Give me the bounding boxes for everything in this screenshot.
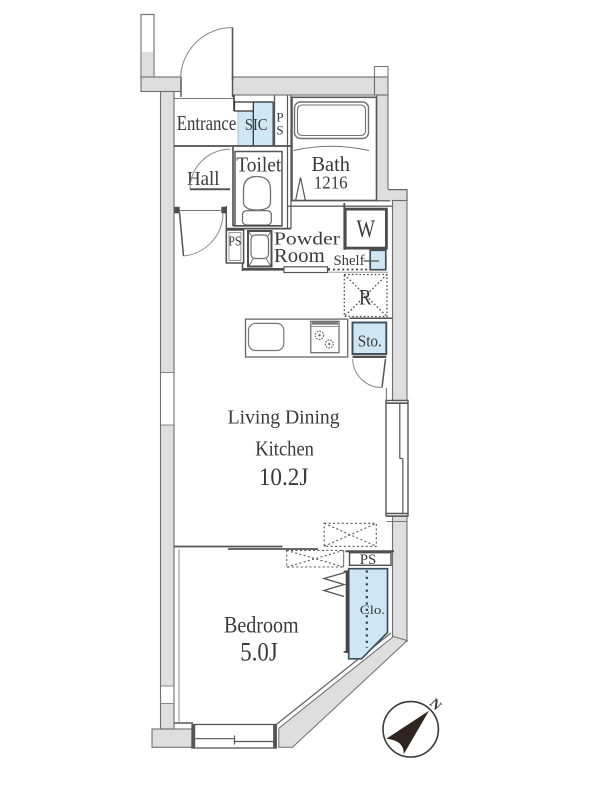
svg-text:SIC: SIC — [245, 115, 268, 134]
svg-text:Hall: Hall — [187, 168, 220, 190]
svg-text:5.0J: 5.0J — [240, 638, 277, 667]
svg-text:Shelf: Shelf — [334, 253, 365, 269]
svg-text:Sto.: Sto. — [358, 331, 382, 350]
svg-text:1216: 1216 — [314, 172, 348, 192]
svg-text:Kitchen: Kitchen — [255, 437, 314, 461]
svg-text:R: R — [359, 284, 372, 309]
svg-text:S: S — [276, 122, 283, 137]
svg-text:Entrance: Entrance — [177, 111, 237, 135]
svg-text:Clo.: Clo. — [360, 602, 385, 617]
svg-text:Bedroom: Bedroom — [224, 613, 299, 638]
svg-text:Living Dining: Living Dining — [228, 407, 340, 429]
svg-text:10.2J: 10.2J — [259, 464, 309, 491]
svg-text:Room: Room — [274, 246, 325, 267]
svg-text:PS: PS — [360, 552, 377, 568]
svg-text:W: W — [356, 216, 375, 243]
svg-text:PS: PS — [228, 235, 241, 250]
svg-text:Toilet: Toilet — [236, 153, 281, 177]
